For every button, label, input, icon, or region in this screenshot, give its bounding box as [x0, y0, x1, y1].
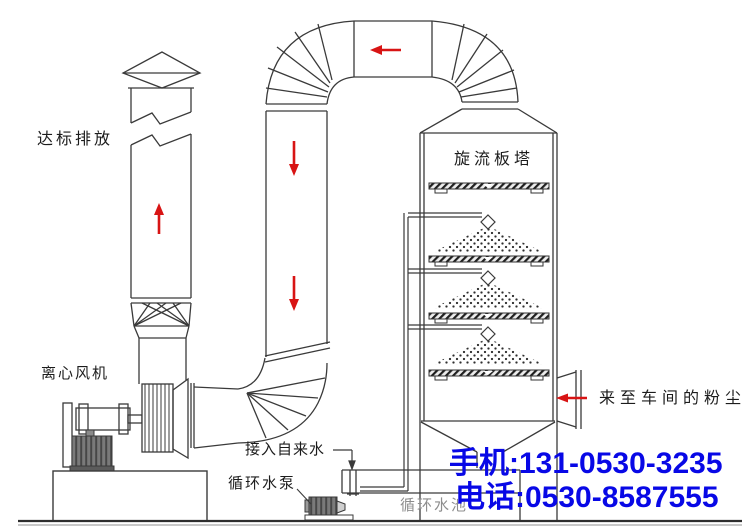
- dust-inlet-arrow: [556, 394, 587, 403]
- label-centrifugal-fan: 离心风机: [41, 366, 109, 383]
- label-circulation-pump: 循环水泵: [228, 476, 296, 493]
- label-dust-from-workshop: 来至车间的粉尘: [599, 390, 746, 408]
- tap-water-line: [333, 450, 355, 469]
- label-emission-standard: 达标排放: [37, 131, 113, 149]
- fan-foundation: [53, 471, 207, 521]
- swirl-plate: [429, 183, 549, 193]
- circulation-pump: [297, 470, 359, 520]
- fan-inlet-elbow: [191, 358, 327, 448]
- swirl-plate: [429, 256, 549, 266]
- pipe-break-symbol: [131, 112, 191, 146]
- down-duct: [265, 111, 330, 362]
- swirl-plate: [429, 313, 549, 323]
- diagram-canvas: 达标排放 离心风机 旋流板塔 来至车间的粉尘 接入自来水 循环水泵 循环水池 手…: [0, 0, 756, 529]
- top-duct-left-arrow: [370, 45, 401, 55]
- left-gored-elbow: [266, 21, 354, 111]
- chimney-up-arrow: [154, 203, 164, 234]
- chimney-stack: [123, 52, 200, 384]
- label-tap-water-inlet: 接入自来水: [245, 442, 325, 459]
- fan-motor: [70, 430, 114, 471]
- swirl-plate: [429, 370, 549, 380]
- spray-cone: [431, 226, 545, 253]
- nozzle: [481, 327, 495, 341]
- spray-cones: [431, 226, 545, 365]
- nozzle: [481, 271, 495, 285]
- down-duct-arrow-1: [289, 141, 299, 176]
- label-cyclone-plate-tower: 旋流板塔: [454, 151, 534, 169]
- spray-cone: [431, 338, 545, 365]
- nozzle: [481, 215, 495, 229]
- right-gored-elbow: [432, 21, 518, 109]
- tower-inlet-transition: [420, 109, 557, 133]
- fan-flange: [173, 379, 188, 458]
- phone-number: 电话:0530-8587555: [455, 483, 719, 513]
- down-duct-arrow-2: [289, 276, 299, 311]
- fan-casing-fins: [142, 384, 173, 452]
- flow-arrows: [154, 45, 587, 403]
- chimney-transition: [131, 298, 191, 338]
- spray-cone: [431, 282, 545, 309]
- chimney-rain-cap: [123, 52, 200, 88]
- ground-line: [18, 521, 742, 525]
- mobile-number: 手机:131-0530-3235: [449, 449, 723, 479]
